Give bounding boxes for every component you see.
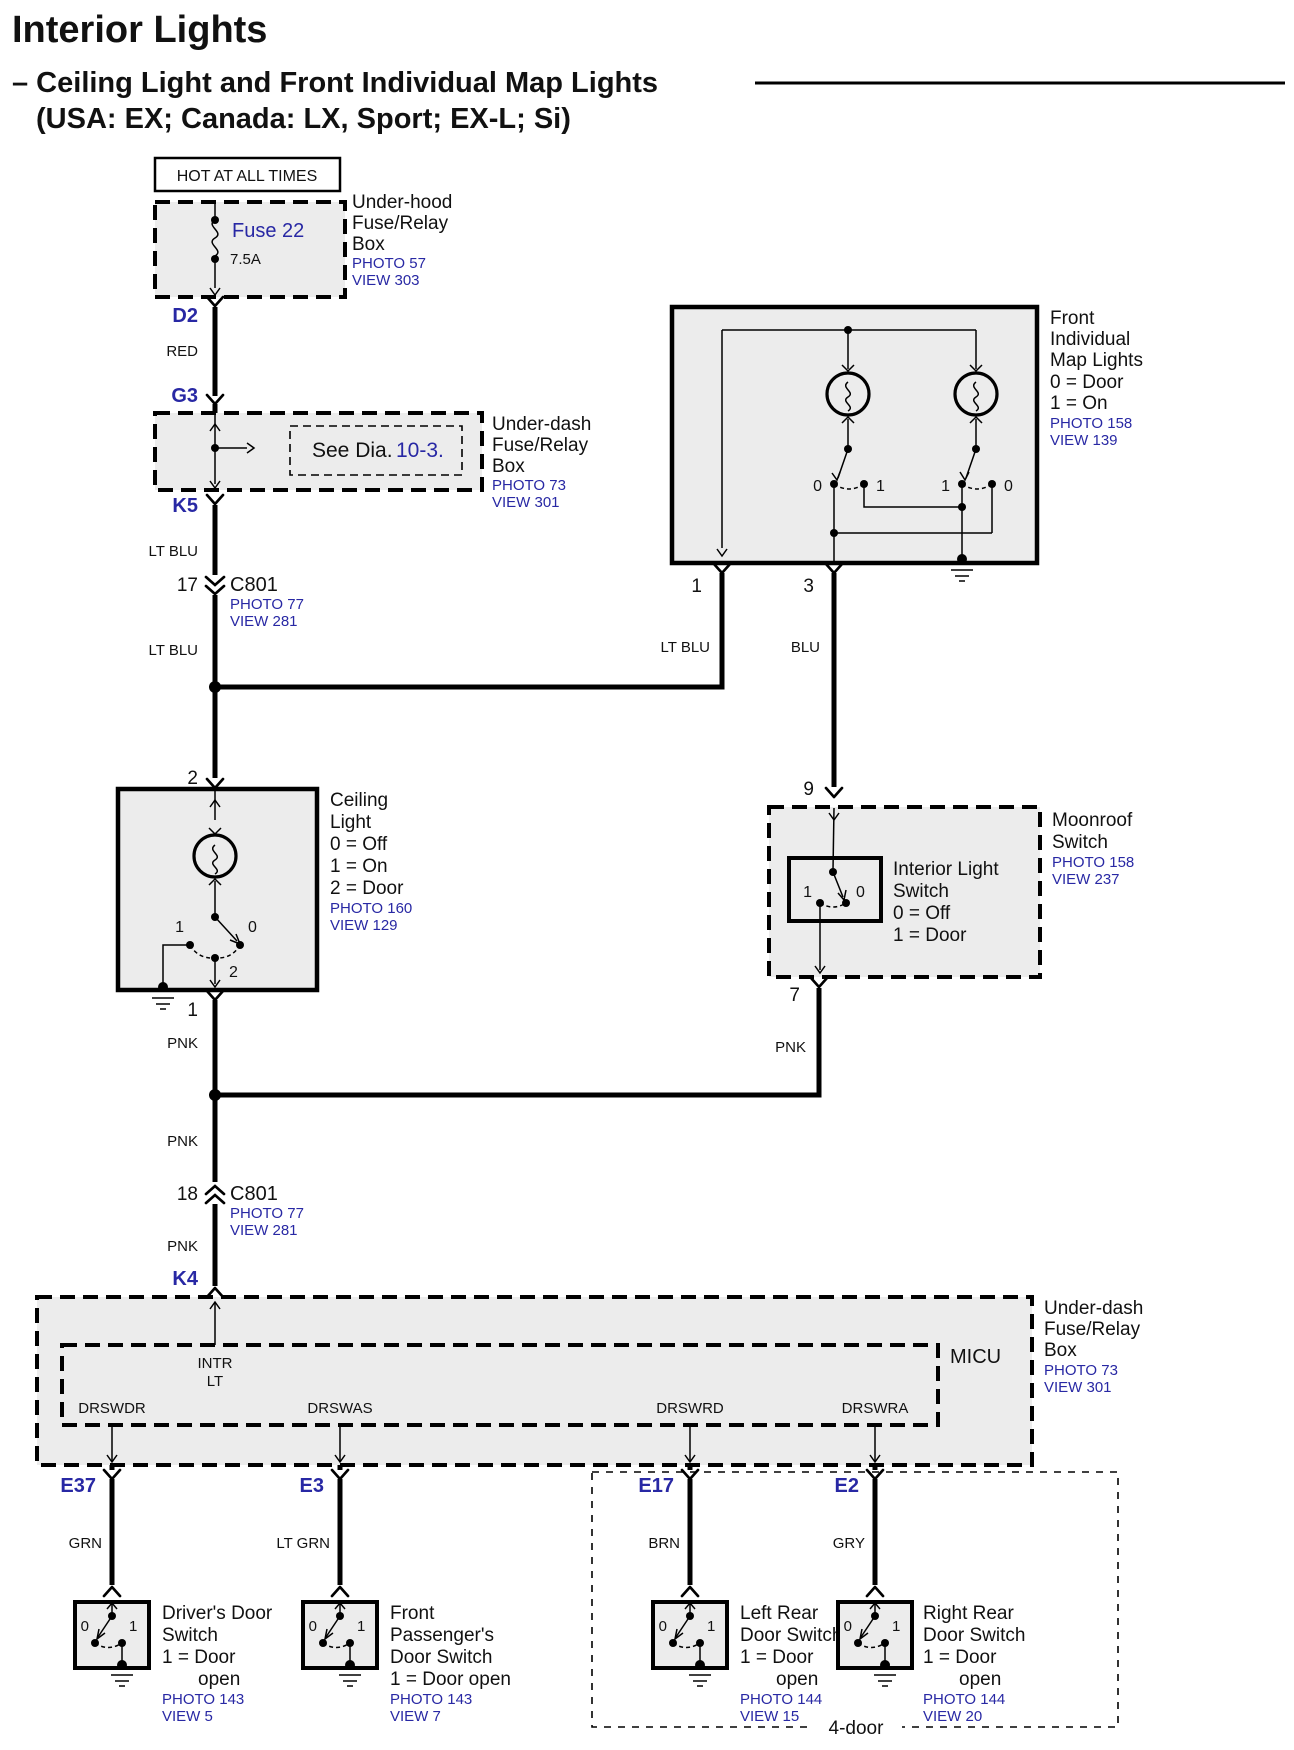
micu-pin-label: DRSWRD (656, 1400, 724, 1417)
photo-ref: PHOTO 144 (740, 1691, 822, 1708)
connector-icon (714, 564, 730, 573)
wire-color-label: PNK (775, 1039, 806, 1056)
wiring-diagram-page: Interior Lights – Ceiling Light and Fron… (0, 0, 1294, 1750)
component-name: Front (1050, 308, 1095, 329)
switch-pos-label: 0 (813, 478, 822, 495)
component-name: Fuse/Relay (492, 435, 589, 456)
connector-icon (826, 788, 842, 797)
pin-number: 2 (187, 768, 198, 789)
terminal-label: D2 (172, 305, 198, 327)
switch-legend: 1 = Door (923, 1647, 997, 1668)
switch-pos-label: 1 (129, 1618, 137, 1635)
ground-dot (345, 1660, 355, 1670)
wire-ltblu-branch (215, 573, 722, 687)
view-ref: VIEW 5 (162, 1708, 213, 1725)
terminal-ceiling-pin2: 2 (187, 768, 223, 789)
photo-ref: PHOTO 143 (162, 1691, 244, 1708)
connector-c801-17: 17 C801 PHOTO 77 VIEW 281 (177, 574, 304, 630)
connector-icon (811, 978, 827, 987)
map-lights-unit: 0 1 1 0 Front Individual Map Li (672, 307, 1143, 581)
junction-dot (209, 1089, 221, 1101)
switch-legend: 2 = Door (330, 878, 404, 899)
component-name: Light (330, 812, 372, 833)
wire-color-label: LT BLU (149, 642, 198, 659)
switch-legend: 0 = Door (1050, 372, 1124, 393)
photo-ref: PHOTO 144 (923, 1691, 1005, 1708)
component-name: Driver's Door (162, 1603, 273, 1624)
switch-legend: open (776, 1669, 818, 1690)
hot-at-all-times-label: HOT AT ALL TIMES (177, 168, 318, 185)
micu-pin-label: INTR (198, 1355, 233, 1372)
pin-number: 3 (803, 576, 814, 597)
connector-icon (207, 495, 223, 504)
terminal-label: E2 (835, 1475, 859, 1497)
connector-icon (826, 564, 842, 573)
wire (833, 808, 834, 870)
terminal-label: E3 (300, 1475, 324, 1497)
connector-name: C801 (230, 574, 278, 596)
photo-ref: PHOTO 77 (230, 596, 304, 613)
wire-color-label: PNK (167, 1035, 198, 1052)
switch-pos-label: 1 (175, 919, 184, 936)
wire-pnk-branch (215, 988, 819, 1095)
header: Interior Lights – Ceiling Light and Fron… (12, 9, 1285, 135)
ground-dot (880, 1660, 890, 1670)
see-dia-ref: 10-3. (396, 439, 444, 462)
switch-pos-label: 0 (856, 884, 865, 901)
inline-connector-icon (206, 577, 224, 594)
micu-outline (62, 1345, 938, 1425)
switch-pos-label: 1 (707, 1618, 715, 1635)
ceiling-light-unit: 1 0 2 Ceiling Light 0 = Off 1 = On 2 = D… (118, 789, 412, 1009)
component-name: Fuse/Relay (352, 213, 449, 234)
switch-pos-label: 1 (803, 884, 812, 901)
component-name: Ceiling (330, 790, 388, 811)
underhood-fuse-box: Fuse 22 7.5A Under-hood Fuse/Relay Box P… (155, 192, 452, 297)
connector-icon (207, 395, 223, 404)
component-name: Moonroof (1052, 810, 1133, 831)
switch-pos-label: 0 (309, 1618, 317, 1635)
view-ref: VIEW 301 (1044, 1379, 1112, 1396)
photo-ref: PHOTO 160 (330, 900, 412, 917)
micu-pin-label: DRSWRA (842, 1400, 909, 1417)
switch-pos-label: 0 (659, 1618, 667, 1635)
view-ref: VIEW 281 (230, 1222, 298, 1239)
switch-legend: 1 = On (330, 856, 388, 877)
component-name: Box (1044, 1340, 1077, 1361)
view-ref: VIEW 281 (230, 613, 298, 630)
component-name: Switch (162, 1625, 218, 1646)
wire-color-label: GRY (833, 1535, 865, 1552)
switch-legend: 1 = Door (740, 1647, 814, 1668)
photo-ref: PHOTO 143 (390, 1691, 472, 1708)
switch-pos-label: 1 (941, 478, 950, 495)
photo-ref: PHOTO 57 (352, 255, 426, 272)
switch-terminal (842, 899, 850, 907)
switch-legend: 1 = Door (162, 1647, 236, 1668)
terminal-label: E17 (638, 1475, 674, 1497)
connector-name: C801 (230, 1183, 278, 1205)
pin-number: 9 (803, 779, 814, 800)
connector-icon (332, 1470, 348, 1479)
component-name: Map Lights (1050, 350, 1143, 371)
component-name: Fuse/Relay (1044, 1319, 1141, 1340)
terminal-ceiling-pin1: 1 (187, 991, 223, 1021)
fuse-rating: 7.5A (230, 251, 261, 268)
connector-icon (207, 779, 223, 788)
terminal-label: E37 (60, 1475, 96, 1497)
pin-number: 17 (177, 575, 198, 596)
pin-number: 7 (789, 985, 800, 1006)
view-ref: VIEW 237 (1052, 871, 1120, 888)
switch-pos-label: 0 (248, 919, 257, 936)
diagram-subtitle: – Ceiling Light and Front Individual Map… (12, 67, 658, 99)
micu-label: MICU (950, 1346, 1001, 1368)
component-name: Door Switch (390, 1647, 492, 1668)
view-ref: VIEW 301 (492, 494, 560, 511)
wire-color-label: BRN (648, 1535, 680, 1552)
underhood-box-outline (155, 202, 345, 297)
map-lights-outline (672, 307, 1037, 563)
component-name: Front (390, 1603, 435, 1624)
switch-pos-label: 1 (876, 478, 885, 495)
switch-pos-label: 0 (844, 1618, 852, 1635)
moonroof-switch-unit: 1 0 Interior Light Switch 0 = Off 1 = Do… (769, 807, 1134, 977)
view-ref: VIEW 303 (352, 272, 420, 289)
ground-dot (695, 1660, 705, 1670)
switch-legend: 0 = Off (330, 834, 388, 855)
switch-legend: 1 = Door (893, 925, 967, 946)
connector-icon (104, 1470, 120, 1479)
component-name: Box (352, 234, 385, 255)
component-name: Switch (893, 881, 949, 902)
door-switch-driver: E37 GRN 0 1 Driver's Door Switch 1 = Doo… (60, 1465, 273, 1725)
switch-legend: open (198, 1669, 240, 1690)
switch-pos-label: 0 (1004, 478, 1013, 495)
view-ref: VIEW 129 (330, 917, 398, 934)
page-title: Interior Lights (12, 9, 267, 51)
wire-color-label: BLU (791, 639, 820, 656)
connector-icon (867, 1587, 883, 1596)
door-switch-left-rear: E17 BRN 0 1 Left Rear Door Switch 1 = Do… (638, 1465, 842, 1725)
photo-ref: PHOTO 158 (1052, 854, 1134, 871)
micu-box: MICU INTR LT DRSWDR DRSWAS DRSWRD DRSWRA… (37, 1297, 1143, 1465)
view-ref: VIEW 15 (740, 1708, 799, 1725)
wire-color-label: LT GRN (276, 1535, 330, 1552)
component-name: Individual (1050, 329, 1130, 350)
photo-ref: PHOTO 73 (1044, 1362, 1118, 1379)
photo-ref: PHOTO 73 (492, 477, 566, 494)
switch-pos-label: 0 (81, 1618, 89, 1635)
wire-color-label: PNK (167, 1238, 198, 1255)
micu-pin-label: DRSWDR (78, 1400, 146, 1417)
wire-color-label: RED (166, 343, 198, 360)
wire-color-label: PNK (167, 1133, 198, 1150)
micu-pin-label: DRSWAS (307, 1400, 372, 1417)
door-switch-passenger: E3 LT GRN 0 1 Front Passenger's Door Swi… (276, 1465, 511, 1725)
component-name: Under-dash (492, 414, 591, 435)
terminal-label: K5 (172, 495, 198, 517)
switch-pos-label: 2 (229, 964, 238, 981)
switch-legend: open (959, 1669, 1001, 1690)
four-door-label: 4-door (829, 1718, 885, 1739)
wire-color-label: LT BLU (661, 639, 710, 656)
switch-legend: 1 = On (1050, 393, 1108, 414)
ground-dot (117, 1660, 127, 1670)
component-name: Door Switch (923, 1625, 1025, 1646)
terminal-label: G3 (171, 385, 198, 407)
component-name: Under-dash (1044, 1298, 1143, 1319)
component-name: Left Rear (740, 1603, 819, 1624)
connector-icon (104, 1587, 120, 1596)
connector-icon (332, 1587, 348, 1596)
fuse-name: Fuse 22 (232, 220, 304, 242)
connector-icon (682, 1587, 698, 1596)
component-name: Right Rear (923, 1603, 1014, 1624)
wiring-diagram-canvas: Interior Lights – Ceiling Light and Fron… (0, 0, 1294, 1750)
inline-connector-icon (206, 1186, 224, 1203)
diagram-variants: (USA: EX; Canada: LX, Sport; EX-L; Si) (36, 103, 571, 135)
wire-color-label: LT BLU (149, 543, 198, 560)
view-ref: VIEW 139 (1050, 432, 1118, 449)
photo-ref: PHOTO 77 (230, 1205, 304, 1222)
component-name: Under-hood (352, 192, 452, 213)
view-ref: VIEW 7 (390, 1708, 441, 1725)
pin-number: 1 (187, 1000, 198, 1021)
see-dia-label: See Dia. (312, 439, 393, 462)
pin-number: 18 (177, 1184, 198, 1205)
ground-dot (957, 554, 967, 564)
power-source: HOT AT ALL TIMES (155, 158, 340, 191)
switch-pos-label: 1 (892, 1618, 900, 1635)
terminal-label: K4 (172, 1268, 198, 1290)
view-ref: VIEW 20 (923, 1708, 982, 1725)
four-door-outline (592, 1472, 1118, 1727)
component-name: Interior Light (893, 859, 999, 880)
component-name: Box (492, 456, 525, 477)
micu-pin-label: LT (207, 1373, 223, 1390)
ground-dot (158, 982, 168, 992)
component-name: Passenger's (390, 1625, 494, 1646)
component-name: Switch (1052, 832, 1108, 853)
switch-pos-label: 1 (357, 1618, 365, 1635)
pin-number: 1 (691, 576, 702, 597)
connector-icon (207, 991, 223, 1000)
component-name: Door Switch (740, 1625, 842, 1646)
door-switch-right-rear: E2 GRY 0 1 Right Rear Door Switch 1 = Do… (833, 1465, 1026, 1725)
photo-ref: PHOTO 158 (1050, 415, 1132, 432)
wire-color-label: GRN (69, 1535, 102, 1552)
switch-legend: 0 = Off (893, 903, 951, 924)
connector-c801-18: 18 C801 PHOTO 77 VIEW 281 (177, 1183, 304, 1239)
switch-legend: 1 = Door open (390, 1669, 511, 1690)
